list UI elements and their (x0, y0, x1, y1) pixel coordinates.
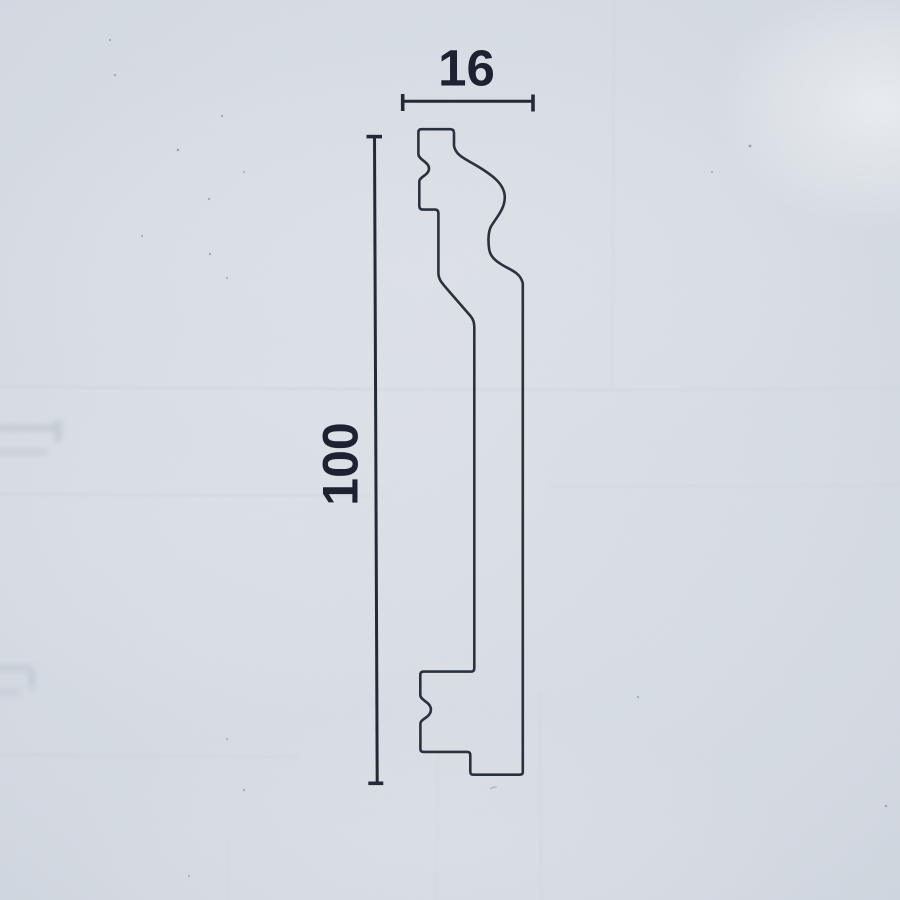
svg-text:16: 16 (438, 40, 495, 97)
svg-text:100: 100 (313, 422, 369, 505)
